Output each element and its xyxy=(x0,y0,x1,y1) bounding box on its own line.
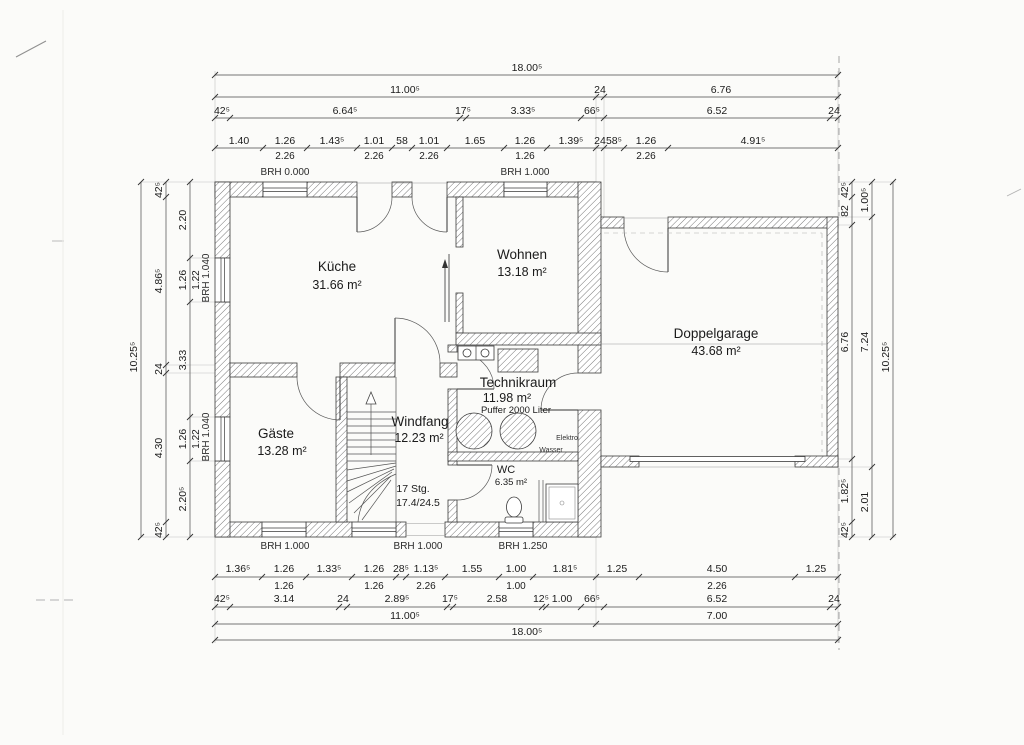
room-name-wohnen: Wohnen xyxy=(497,247,547,262)
heating-unit xyxy=(498,349,538,372)
dim-label: 2.20 xyxy=(177,210,189,231)
dim-label: 11.00⁵ xyxy=(390,84,420,96)
room-name-technikraum: Technikraum xyxy=(480,375,557,390)
dim-label: 18.00⁵ xyxy=(512,626,543,638)
dim-label: 3.33⁵ xyxy=(511,105,536,117)
brh-label: BRH 1.000 xyxy=(501,167,550,178)
room-area-windfang: 12.23 m² xyxy=(394,431,443,445)
dim-label: 1.25 xyxy=(607,563,628,575)
dim-label: 1.25 xyxy=(806,563,827,575)
room-name-doppelgarage: Doppelgarage xyxy=(674,326,759,341)
dim-label: 6.52 xyxy=(707,593,728,605)
dim-label: 1.26 xyxy=(177,270,189,291)
technikraum-note: Puffer 2000 Liter xyxy=(481,405,551,416)
brh-label: BRH 1.250 xyxy=(499,541,548,552)
dim-label: 1.39⁵ xyxy=(559,135,584,147)
dim-label: 66⁵ xyxy=(584,593,600,605)
dim-label: 2.58 xyxy=(487,593,508,605)
window xyxy=(263,182,307,197)
dim-label: 66⁵ xyxy=(584,105,600,117)
brh-label: BRH 1.040 xyxy=(201,253,212,302)
dim-label: 1.26 xyxy=(274,581,294,592)
dim-label: 1.43⁵ xyxy=(320,135,345,147)
brh-label: BRH 1.000 xyxy=(261,541,310,552)
window xyxy=(504,182,547,197)
dim-label: 1.65 xyxy=(465,135,486,147)
dim-label: 1.26 xyxy=(177,429,189,450)
brh-label: BRH 1.000 xyxy=(394,541,443,552)
dim-label: 24 xyxy=(828,593,840,605)
buffer-tank xyxy=(500,413,536,449)
room-name-gaeste: Gäste xyxy=(258,426,294,441)
floor-plan-page: 18.00⁵ 11.00⁵ 24 6.76 42⁵ 6.64⁵ 17⁵ 3.33… xyxy=(0,0,1024,745)
room-area-wc: 6.35 m² xyxy=(495,477,527,488)
dim-label: 28⁵ xyxy=(393,563,409,575)
dim-label: 2.26 xyxy=(364,151,384,162)
dim-label: 11.00⁵ xyxy=(390,610,420,622)
dim-label: 42⁵ xyxy=(153,522,165,538)
stairs-count-label: 17 Stg. xyxy=(396,483,429,495)
window xyxy=(352,522,396,537)
dim-label: 7.24 xyxy=(859,332,871,353)
room-area-gaeste: 13.28 m² xyxy=(257,444,306,458)
room-area-technikraum: 11.98 m² xyxy=(483,391,531,405)
dim-label: 6.76 xyxy=(839,332,851,353)
toilet xyxy=(505,497,523,523)
dim-label: 42⁵ xyxy=(153,182,165,198)
dim-label: 12⁵ xyxy=(533,593,549,605)
dim-label: 6.52 xyxy=(707,105,728,117)
garage-door-panel xyxy=(630,457,805,462)
dim-label: 17⁵ xyxy=(442,593,458,605)
window xyxy=(215,417,230,461)
buffer-tank xyxy=(456,413,492,449)
dim-label: 2.20⁵ xyxy=(177,487,189,512)
dim-label: 2.26 xyxy=(636,151,656,162)
dim-label: 24 xyxy=(594,84,606,96)
dim-label: 1.26 xyxy=(274,563,295,575)
dim-label: 4.86⁵ xyxy=(153,269,165,294)
dim-label: 17⁵ xyxy=(455,105,471,117)
dim-label: 42⁵ xyxy=(839,522,851,538)
dim-label: 1.01 xyxy=(419,135,440,147)
dim-label: 1.36⁵ xyxy=(226,563,251,575)
dim-label: 24 xyxy=(153,363,165,375)
dim-label: 4.50 xyxy=(707,563,728,575)
dim-label: 2.01 xyxy=(859,492,871,513)
room-name-kueche: Küche xyxy=(318,259,356,274)
elektro-label: Elektro xyxy=(556,435,578,442)
dim-label: 1.26 xyxy=(636,135,657,147)
dim-label: 4.30 xyxy=(153,438,165,459)
dim-label: 10.25⁵ xyxy=(128,342,140,373)
dim-label: 3.33 xyxy=(177,350,189,371)
dim-label: 1.55 xyxy=(462,563,483,575)
dim-label: 1.13⁵ xyxy=(414,563,439,575)
dim-label: 1.33⁵ xyxy=(317,563,342,575)
dim-label: 7.00 xyxy=(707,610,728,622)
dim-label: 1.26 xyxy=(275,135,296,147)
dim-label: 42⁵ xyxy=(214,593,230,605)
dim-label: 1.00 xyxy=(552,593,573,605)
room-area-kueche: 31.66 m² xyxy=(312,278,361,292)
dim-label: 42⁵ xyxy=(839,182,851,198)
dim-label: 82 xyxy=(839,205,851,217)
window xyxy=(499,522,533,537)
window xyxy=(215,258,230,302)
wasser-label: Wasser xyxy=(539,447,563,454)
dim-label: 1.26 xyxy=(515,135,536,147)
dim-label: 24 xyxy=(828,105,840,117)
dim-label: 24 xyxy=(337,593,349,605)
dim-label: 1.00⁵ xyxy=(859,188,871,213)
dim-label: 1.40 xyxy=(229,135,250,147)
dim-label: 18.00⁵ xyxy=(512,62,543,74)
room-area-doppelgarage: 43.68 m² xyxy=(691,344,740,358)
window xyxy=(262,522,306,537)
stairs-ratio-label: 17.4/24.5 xyxy=(396,497,440,509)
room-area-wohnen: 13.18 m² xyxy=(497,265,546,279)
dim-label: 58⁵ xyxy=(606,135,622,147)
room-name-windfang: Windfang xyxy=(391,414,448,429)
brh-label: BRH 1.040 xyxy=(201,412,212,461)
dim-label: 1.26 xyxy=(515,151,535,162)
dim-label: 10.25⁵ xyxy=(880,342,892,373)
dim-label: 3.14 xyxy=(274,593,295,605)
dim-label: 2.26 xyxy=(416,581,436,592)
dim-label: 24 xyxy=(594,135,606,147)
dim-label: 1.81⁵ xyxy=(553,563,578,575)
dim-label: 2.26 xyxy=(275,151,295,162)
dim-label: 1.82⁵ xyxy=(839,479,851,504)
room-name-wc: WC xyxy=(497,464,515,476)
dim-label: 1.00 xyxy=(506,581,526,592)
dim-label: 1.26 xyxy=(364,563,385,575)
dim-label: 2.89⁵ xyxy=(385,593,410,605)
appliance xyxy=(458,346,494,360)
dim-label: 2.26 xyxy=(707,581,727,592)
dim-label: 2.26 xyxy=(419,151,439,162)
shower xyxy=(546,484,578,522)
dim-label: 4.91⁵ xyxy=(741,135,766,147)
dim-label: 1.01 xyxy=(364,135,385,147)
floor-plan-drawing: 18.00⁵ 11.00⁵ 24 6.76 42⁵ 6.64⁵ 17⁵ 3.33… xyxy=(0,0,1024,745)
dim-label: 42⁵ xyxy=(214,105,230,117)
brh-label: BRH 0.000 xyxy=(261,167,310,178)
dim-label: 58 xyxy=(396,135,408,147)
dim-label: 1.00 xyxy=(506,563,527,575)
dim-label: 6.64⁵ xyxy=(333,105,358,117)
dim-label: 6.76 xyxy=(711,84,732,96)
dim-label: 1.26 xyxy=(364,581,384,592)
